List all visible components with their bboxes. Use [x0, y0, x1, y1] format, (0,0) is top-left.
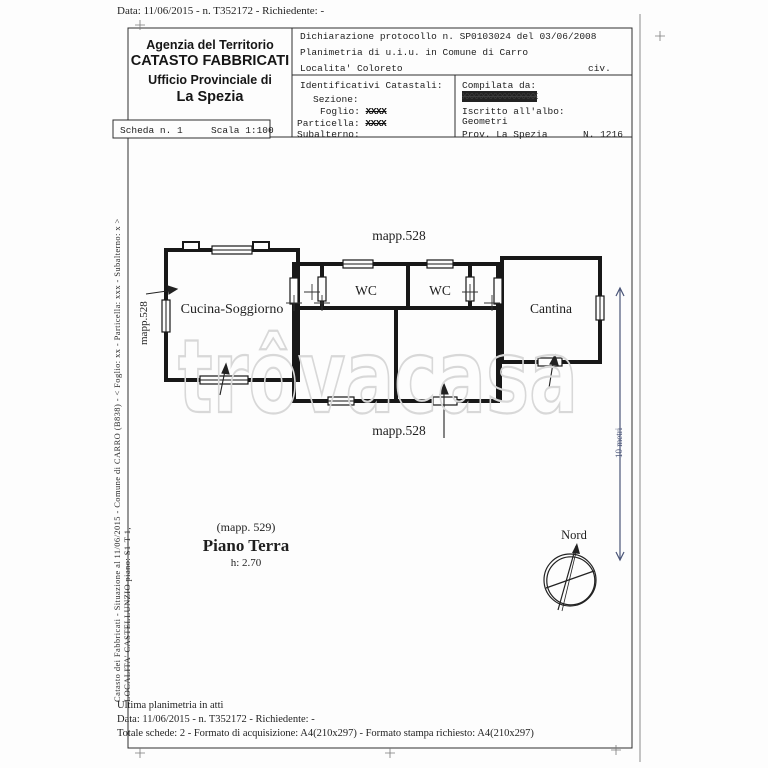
compilata-label: Compilata da:: [462, 80, 536, 91]
albo-value: Geometri: [462, 116, 508, 127]
civ-label: civ.: [588, 63, 611, 74]
dichiarazione-line: Dichiarazione protocollo n. SP0103024 de…: [300, 31, 596, 42]
identificativi-title: Identificativi Catastali:: [300, 80, 443, 91]
floor-height: h: 2.70: [167, 557, 325, 569]
room-label-wc-2: WC: [410, 283, 470, 299]
compass-icon: [544, 543, 596, 611]
mapp-528-left: mapp.528: [138, 301, 150, 345]
footer-line-2: Data: 11/06/2015 - n. T352172 - Richiede…: [117, 714, 315, 725]
floor-title: Piano Terra: [167, 536, 325, 556]
particella-label: Particella:: [297, 118, 360, 129]
particella-value: XXXX: [365, 118, 386, 129]
mapp-529-note: (mapp. 529): [182, 520, 310, 535]
agency-line-1: Agenzia del Territorio: [128, 38, 292, 52]
left-margin-caption: Catasto dei Fabbricati - Situazione al 1…: [113, 146, 132, 702]
agency-line-3: Ufficio Provinciale di: [128, 73, 292, 87]
sezione-label: Sezione:: [313, 94, 359, 105]
localita-line: Localita' Coloreto: [300, 63, 403, 74]
catasto-document-page: { "page": { "top_line": "Data: 11/06/201…: [0, 0, 768, 768]
foglio-row: Foglio: XXXX: [320, 106, 386, 117]
dimension-line: [616, 288, 624, 560]
mapp-528-top: mapp.528: [329, 228, 469, 244]
mapp-528-bottom: mapp.528: [329, 423, 469, 439]
dimension-label: 10 metri: [614, 428, 624, 458]
footer-line-3: Totale schede: 2 - Formato di acquisizio…: [117, 728, 534, 739]
footer-line-1: Ultima planimetria in atti: [117, 700, 223, 711]
particella-row: Particella: XXXX: [297, 118, 386, 129]
subalterno-label: Subalterno:: [297, 129, 360, 140]
compass-north-label: Nord: [542, 528, 606, 543]
scheda-label: Scheda n. 1: [120, 125, 183, 136]
compilata-name-redacted: XXXXXXXXXXXXXXXX: [462, 91, 537, 102]
room-label-cantina: Cantina: [502, 301, 600, 317]
scala-label: Scala 1:100: [211, 125, 274, 136]
prov-label: Prov. La Spezia: [462, 129, 548, 140]
room-label-cucina-soggiorno: Cucina-Soggiorno: [168, 302, 296, 318]
agency-header: Agenzia del Territorio CATASTO FABBRICAT…: [128, 38, 292, 105]
planimetria-line: Planimetria di u.i.u. in Comune di Carro: [300, 47, 528, 58]
agency-line-2: CATASTO FABBRICATI: [128, 53, 292, 69]
room-label-wc-1: WC: [324, 283, 408, 299]
left-margin-line-2: LOCALITA' CASTELLUNZIO piano: S1-T-1,: [123, 146, 133, 702]
top-data-line: Data: 11/06/2015 - n. T352172 - Richiede…: [117, 5, 324, 17]
albo-number: N. 1216: [583, 129, 623, 140]
watermark: trôvacasa: [178, 318, 578, 437]
foglio-label: Foglio:: [320, 106, 360, 117]
foglio-value: XXXX: [366, 106, 387, 117]
agency-line-4: La Spezia: [128, 89, 292, 105]
